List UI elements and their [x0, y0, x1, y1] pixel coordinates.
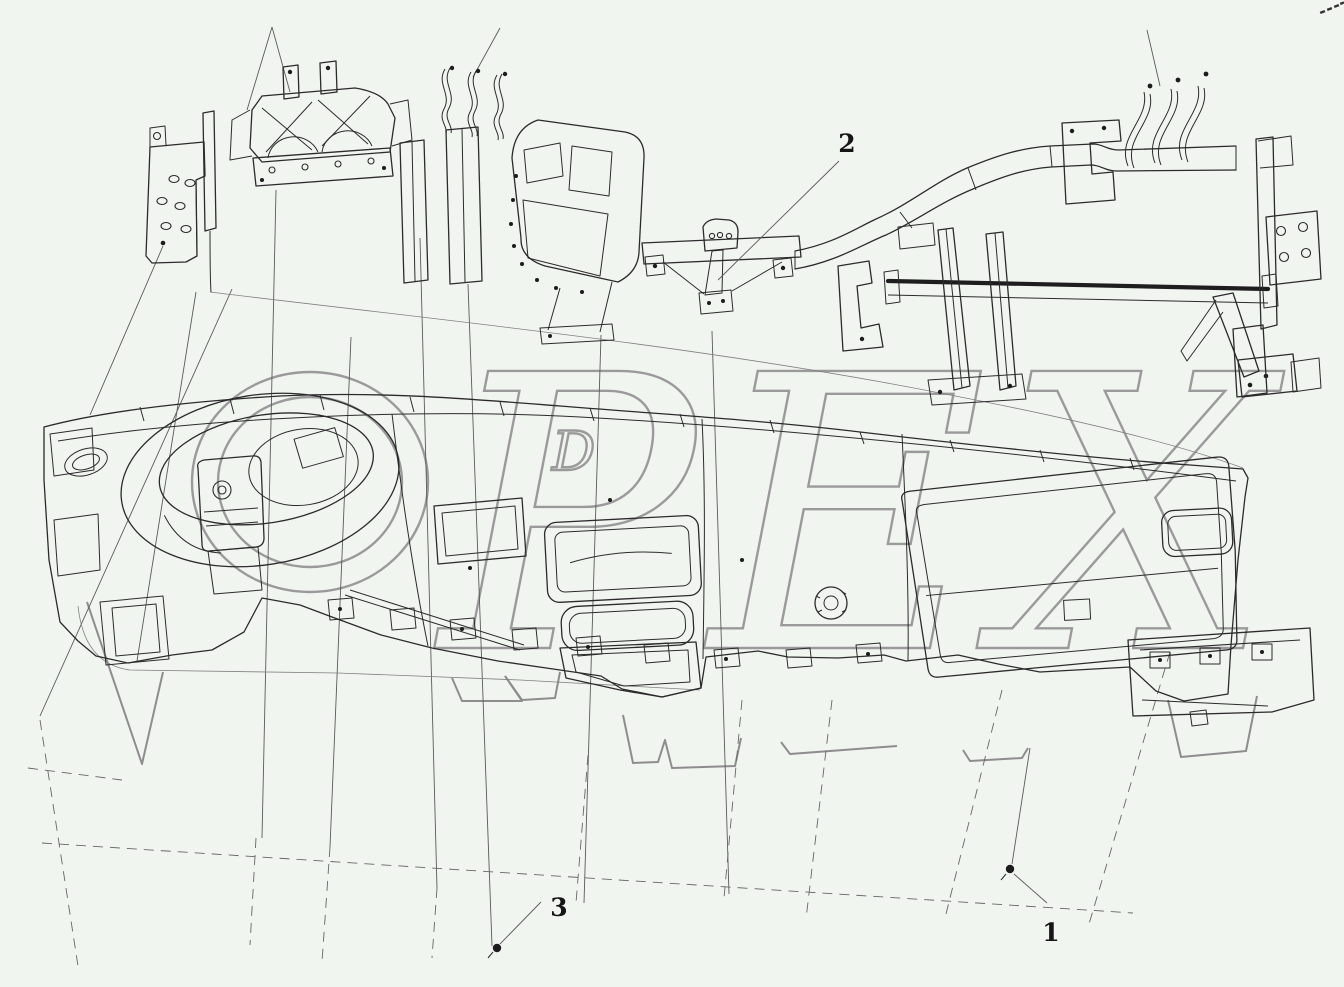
drawing-segment [450, 66, 454, 70]
drawing-segment [512, 244, 516, 248]
drawing-segment [61, 443, 111, 481]
drawing-segment [447, 68, 451, 133]
drawing-segment [548, 334, 552, 338]
drawing-segment [260, 178, 264, 182]
drawing-segment [938, 390, 942, 394]
drawing-segment [164, 508, 221, 561]
drawing-segment [250, 838, 256, 945]
drawing-segment [524, 143, 563, 183]
drawing-segment [503, 72, 507, 76]
drawing-segment [795, 165, 1236, 269]
callout-3-label: 3 [550, 893, 567, 922]
drawing-segment [476, 69, 480, 73]
callout-1-label: 1 [1042, 918, 1059, 947]
drawing-segment [90, 246, 163, 415]
drawing-segment [169, 176, 179, 183]
drawing-segment [523, 200, 608, 276]
drawing-segment [432, 888, 437, 958]
drawing-segment [1302, 249, 1311, 258]
drawing-segment [1102, 126, 1106, 130]
drawing-segment [1131, 94, 1150, 168]
drawing-segment [412, 129, 465, 282]
drawing-segment [1280, 253, 1289, 262]
drawing-segment [488, 952, 493, 958]
drawing-segment [795, 144, 1236, 251]
drawing-segment [866, 652, 870, 656]
drawing-segment [1176, 78, 1181, 83]
drawing-segment [272, 27, 290, 92]
watermark-letters-pex: PEX [434, 295, 1286, 738]
drawing-segment [1277, 227, 1286, 236]
callout-3-leader [500, 902, 541, 944]
drawing-segment [608, 498, 612, 502]
screw-icon [1006, 865, 1014, 873]
drawing-segment [468, 566, 472, 570]
drawing-segment [494, 75, 498, 140]
drawing-segment [740, 558, 744, 562]
drawing-segment [460, 627, 464, 631]
drawing-segment [112, 604, 160, 656]
drawing-segment [54, 514, 100, 576]
drawing-segment [703, 219, 738, 251]
callout-1: 1 [1001, 865, 1060, 947]
drawing-segment [382, 166, 386, 170]
drawing-segment [707, 301, 711, 305]
drawing-segment [520, 262, 524, 266]
corner-marks [1320, 1, 1344, 14]
drawing-segment [1208, 654, 1212, 658]
drawing-segment [705, 250, 723, 295]
drawing-segment [509, 222, 513, 226]
drawing-segment [330, 337, 351, 847]
drawing-segment [150, 126, 166, 147]
drawing-segment [653, 264, 657, 268]
watermark-letter-o-outer [192, 372, 428, 592]
drawing-segment [721, 299, 725, 303]
drawing-segment [302, 164, 308, 170]
drawing-segment [196, 180, 197, 256]
callout-3: 3 [488, 893, 568, 958]
drawing-segment [554, 286, 558, 290]
drawing-segment [511, 198, 515, 202]
drawing-segment [1158, 91, 1177, 165]
drawing-segment [442, 69, 446, 134]
drawing-segment [724, 657, 728, 661]
column-support-bracket [230, 61, 412, 186]
drawing-segment [1001, 874, 1006, 880]
drawing-segment [1248, 383, 1253, 388]
drawing-segment [514, 174, 518, 178]
drawing-segment [28, 768, 122, 780]
drawing-segment [390, 608, 416, 630]
cross-car-beam-tube [795, 144, 1236, 269]
drawing-segment [1258, 136, 1293, 168]
drawing-segment [161, 223, 171, 230]
drawing-segment [210, 231, 211, 292]
drawing-segment [499, 74, 503, 139]
drawing-segment [1070, 129, 1074, 133]
drawing-segment [157, 198, 167, 205]
drawing-segment [262, 96, 370, 152]
drawing-segment [213, 481, 231, 499]
drawing-segment [781, 742, 897, 754]
callout-1-leader [1014, 874, 1047, 903]
drawing-segment [288, 70, 292, 74]
drawing-segment [175, 203, 185, 210]
drawing-segment [42, 843, 1133, 913]
watermark-letter-d: D [551, 420, 595, 483]
drawing-segment [717, 232, 722, 237]
drawing-segment [154, 133, 161, 140]
drawing-segment [1260, 650, 1264, 654]
drawing-segment [137, 292, 196, 661]
drawing-segment [322, 847, 330, 962]
parts-diagram-svg: PEX D [0, 0, 1344, 987]
callout-2-label: 2 [838, 129, 855, 158]
drawing-segment [781, 266, 785, 270]
drawing-segment [1008, 384, 1012, 388]
vertical-strip [203, 111, 216, 292]
drawing-segment [1299, 223, 1308, 232]
drawing-segment [535, 278, 539, 282]
drawing-segment [795, 146, 1236, 269]
drawing-segment [87, 602, 163, 764]
drawing-segment [1204, 72, 1209, 77]
drawing-segment [1327, 7, 1333, 11]
drawing-segment [71, 451, 102, 473]
drawing-segment [368, 158, 374, 164]
drawing-segment [204, 508, 258, 526]
drawing-segment [181, 226, 191, 233]
hvac-duct [400, 127, 482, 284]
drawing-segment [208, 547, 262, 594]
drawing-segment [569, 146, 612, 196]
drawing-segment [888, 281, 1268, 289]
drawing-segment [1148, 84, 1153, 89]
drawing-segment [898, 223, 935, 249]
drawing-segment [860, 337, 864, 341]
drawing-segment [1158, 658, 1162, 662]
drawing-segment [586, 645, 590, 649]
drawing-segment [161, 241, 166, 246]
drawing-segment [726, 233, 731, 238]
drawing-segment [230, 100, 412, 160]
watermark: PEX D [87, 295, 1286, 768]
diagram-canvas: PEX D [0, 0, 1344, 987]
drawing-segment [1125, 92, 1144, 166]
drawing-segment [338, 607, 342, 611]
drawing-segment [473, 71, 477, 136]
left-mounting-bracket [146, 126, 205, 263]
drawing-segment [1179, 86, 1198, 160]
drawing-segment [1340, 1, 1344, 5]
wiring-straps-right [1125, 72, 1208, 168]
drawing-segment [580, 290, 584, 294]
drawing-segment [185, 180, 195, 187]
drawing-segment [709, 233, 714, 238]
flat-bracket [1062, 120, 1121, 204]
drawing-segment [1012, 748, 1030, 864]
drawing-segment [1147, 30, 1160, 86]
drawing-segment [293, 427, 344, 469]
drawing-segment [1320, 10, 1326, 14]
drawing-segment [326, 66, 330, 70]
watermark-letter-o-inner [218, 397, 402, 567]
drawing-segment [1185, 88, 1204, 162]
screw-icon [493, 944, 501, 952]
drawing-segment [262, 190, 276, 838]
drawing-segment [963, 748, 1028, 761]
drawing-segment [335, 161, 341, 167]
drawing-segment [40, 289, 232, 716]
drawing-segment [1152, 89, 1171, 163]
drawing-segment [1334, 4, 1340, 8]
drawing-segment [269, 167, 275, 173]
drawing-segment [247, 27, 272, 110]
drawing-segment [420, 238, 437, 888]
